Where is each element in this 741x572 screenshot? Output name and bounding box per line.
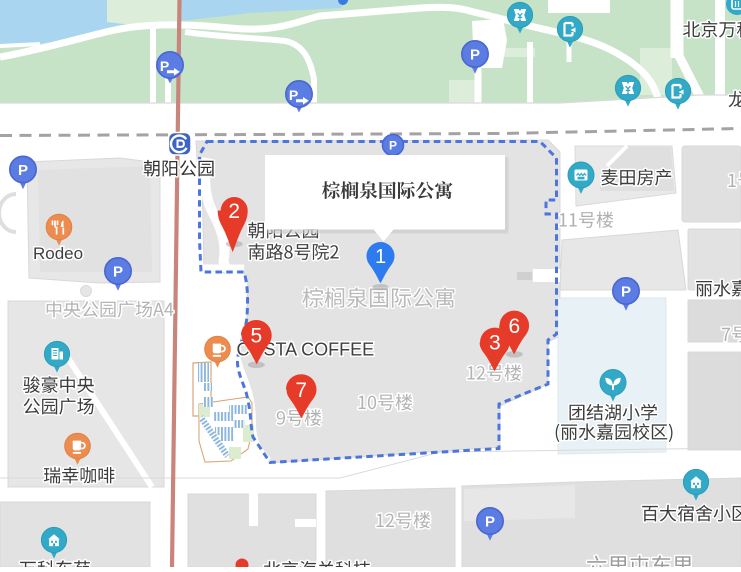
svg-text:P: P [389, 138, 397, 152]
svg-text:7: 7 [295, 379, 307, 402]
svg-text:5: 5 [250, 325, 262, 348]
svg-text:P: P [470, 46, 480, 63]
svg-text:3: 3 [489, 332, 501, 355]
svg-text:P: P [485, 513, 495, 530]
svg-text:6: 6 [508, 315, 520, 338]
svg-text:P: P [113, 263, 123, 280]
svg-text:2: 2 [228, 200, 240, 223]
svg-text:P: P [621, 283, 631, 300]
svg-text:Rodeo: Rodeo [33, 244, 83, 263]
svg-text:P: P [18, 162, 28, 179]
svg-text:1: 1 [375, 246, 386, 268]
